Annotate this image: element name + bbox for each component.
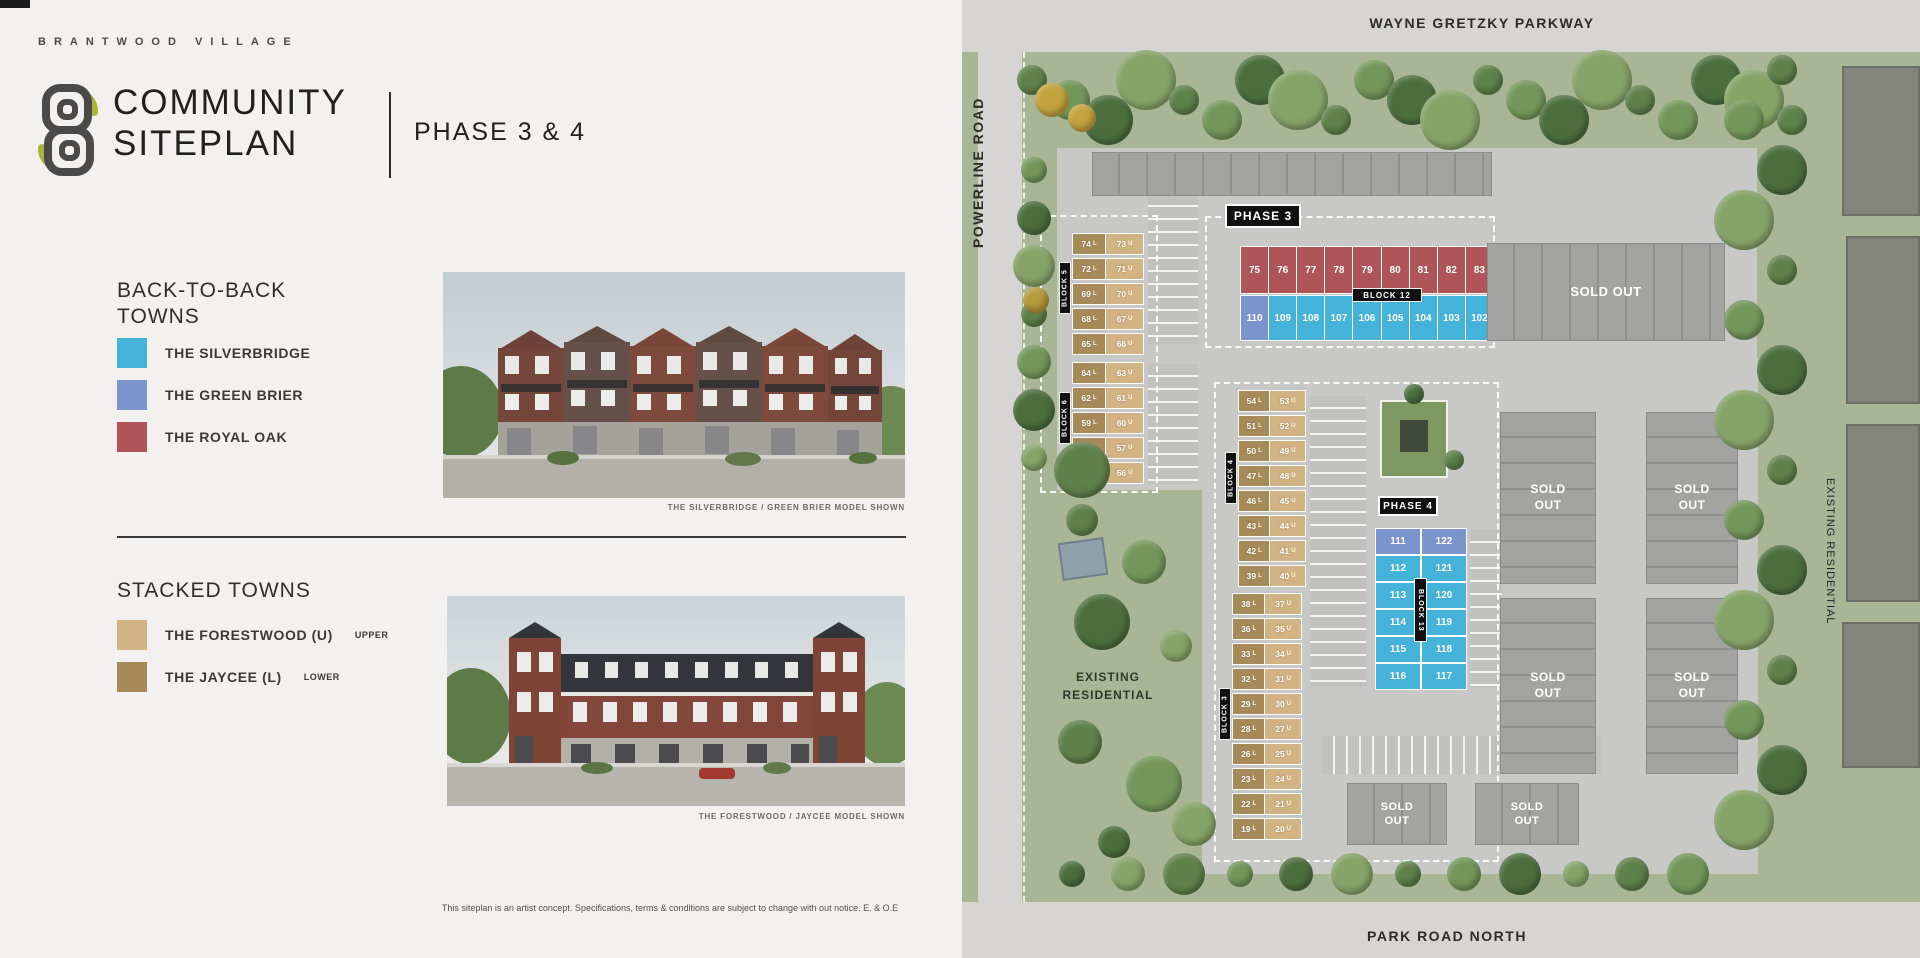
legend-label: THE GREEN BRIER [165, 387, 303, 403]
legend-label: THE FORESTWOOD (U) [165, 627, 333, 643]
park-road-north-label: PARK ROAD NORTH [1332, 928, 1562, 944]
unit-suffix: U [1287, 801, 1291, 807]
legend-item: THE FORESTWOOD (U)UPPER [117, 620, 388, 650]
phase3-tag: PHASE 3 [1225, 204, 1301, 228]
unit-cell: 25U [1265, 744, 1301, 764]
unit-number: 31 [1275, 674, 1284, 684]
unit-cell: 119 [1422, 610, 1466, 635]
unit-cell: 42L [1239, 541, 1269, 561]
tree-icon [1058, 720, 1102, 764]
unit-cell: 66U [1106, 334, 1143, 354]
stacked-model-photo [447, 596, 905, 806]
tree-icon [1163, 853, 1205, 895]
unit-number: 60 [1117, 418, 1126, 428]
existing-house [1058, 537, 1109, 581]
unit-cell: 111 [1376, 529, 1420, 554]
unit-suffix: U [1291, 423, 1295, 429]
tree-icon [1724, 70, 1784, 130]
unit-number: 50 [1247, 446, 1256, 456]
unit-number: 24 [1275, 774, 1284, 784]
block4: 54L53U51L52U50L49U47L48U46L45U43L44U42L4… [1238, 390, 1306, 590]
unit-cell: 105 [1382, 296, 1409, 340]
legend-label: THE JAYCEE (L) [165, 669, 282, 685]
unit-suffix: L [1093, 316, 1097, 322]
block5: 74L73U72L71U69L70U68L67U65L66U [1072, 233, 1144, 358]
unit-suffix: L [1258, 423, 1262, 429]
unit-cell: 44U [1270, 516, 1305, 536]
unit-number: 57 [1117, 443, 1126, 453]
tree-icon [1777, 105, 1807, 135]
photo1-caption: THE SILVERBRIDGE / GREEN BRIER MODEL SHO… [443, 503, 905, 512]
unit-cell: 54L [1239, 391, 1269, 411]
unit-cell: 81 [1410, 247, 1437, 293]
back-to-back-heading: BACK-TO-BACK TOWNS [117, 278, 286, 331]
unit-suffix: U [1128, 370, 1132, 376]
tree-icon [1268, 70, 1328, 130]
tree-icon [1767, 55, 1797, 85]
title-divider [389, 92, 391, 178]
unit-suffix: U [1128, 445, 1132, 451]
unit-suffix: U [1128, 291, 1132, 297]
stacked-towns-heading: STACKED TOWNS [117, 578, 311, 604]
unit-number: 64 [1082, 368, 1091, 378]
tree-icon [1767, 455, 1797, 485]
tree-icon [1059, 861, 1085, 887]
unit-cell: 28L [1233, 719, 1264, 739]
unit-suffix: U [1287, 601, 1291, 607]
existing-building [1842, 66, 1920, 216]
unit-number: 35 [1275, 624, 1284, 634]
unit-cell: 27U [1265, 719, 1301, 739]
stacked-unit-row: 36L35U [1232, 618, 1302, 640]
unit-number: 73 [1117, 239, 1126, 249]
unit-number: 74 [1082, 239, 1091, 249]
unit-cell: 122 [1422, 529, 1466, 554]
unit-number: 34 [1275, 649, 1284, 659]
block5-tag: BLOCK 5 [1059, 262, 1071, 314]
unit-suffix: L [1093, 420, 1097, 426]
tree-icon [1354, 60, 1394, 100]
block12-tag: BLOCK 12 [1352, 288, 1422, 302]
sold-out-label: SOLD OUT [1570, 284, 1641, 301]
section-divider [117, 536, 906, 538]
sold-out-label: SOLD OUT [1525, 670, 1571, 701]
unit-suffix: U [1291, 523, 1295, 529]
unit-cell: 36L [1233, 619, 1264, 639]
unit-number: 28 [1241, 724, 1250, 734]
unit-cell: 110 [1241, 296, 1268, 340]
unit-cell: 35U [1265, 619, 1301, 639]
tree-icon [1473, 65, 1503, 95]
unit-suffix: L [1093, 341, 1097, 347]
stacked-unit-row: 58L57U [1072, 437, 1144, 459]
siteplan-page: BRANTWOOD VILLAGE COMMUNITY SITEPLAN PHA… [0, 0, 1920, 958]
unit-suffix: L [1093, 470, 1097, 476]
title-line1: COMMUNITY [113, 82, 347, 123]
unit-suffix: L [1253, 776, 1257, 782]
unit-cell: 43L [1239, 516, 1269, 536]
unit-cell: 37U [1265, 594, 1301, 614]
unit-cell: 106 [1353, 296, 1380, 340]
legend-suffix: UPPER [355, 630, 389, 640]
tree-icon [1691, 55, 1741, 105]
unit-cell: 72L [1073, 259, 1105, 279]
unit-number: 44 [1280, 521, 1289, 531]
tree-icon [1116, 50, 1176, 110]
unit-number: 52 [1280, 421, 1289, 431]
unit-cell: 71U [1106, 259, 1143, 279]
legend-item: THE JAYCEE (L)LOWER [117, 662, 388, 692]
legend-item: THE ROYAL OAK [117, 422, 310, 452]
unit-suffix: L [1258, 573, 1262, 579]
unit-suffix: L [1253, 676, 1257, 682]
rear-building-strip [1092, 152, 1492, 196]
page-title: COMMUNITY SITEPLAN [113, 82, 347, 165]
tree-icon [1160, 630, 1192, 662]
stacked-unit-row: 28L27U [1232, 718, 1302, 740]
unit-number: 55 [1082, 468, 1091, 478]
unit-suffix: L [1253, 701, 1257, 707]
unit-cell: 108 [1297, 296, 1324, 340]
unit-cell: 32L [1233, 669, 1264, 689]
tree-icon [1111, 857, 1145, 891]
courtyard [1382, 402, 1446, 476]
unit-cell: 20U [1265, 819, 1301, 839]
unit-cell: 103 [1438, 296, 1465, 340]
block6-tag: BLOCK 6 [1059, 392, 1071, 444]
block13-tag: BLOCK 13 [1414, 578, 1427, 642]
legend-label: THE SILVERBRIDGE [165, 345, 310, 361]
unit-cell: 121 [1422, 556, 1466, 581]
sold-out-building: SOLD OUT [1646, 598, 1738, 774]
unit-suffix: L [1253, 726, 1257, 732]
unit-cell: 116 [1376, 664, 1420, 689]
existing-building [1846, 236, 1920, 404]
sold-out-building: SOLD OUT [1500, 412, 1596, 584]
btb-heading-line1: BACK-TO-BACK [117, 278, 286, 304]
unit-suffix: U [1128, 470, 1132, 476]
block12-royal-oak-row: 757677787980818283 [1240, 246, 1494, 294]
stacked-unit-row: 64L63U [1072, 362, 1144, 384]
stacked-unit-row: 42L41U [1238, 540, 1306, 562]
unit-cell: 38L [1233, 594, 1264, 614]
unit-number: 33 [1241, 649, 1250, 659]
tree-icon [1757, 545, 1807, 595]
unit-number: 22 [1241, 799, 1250, 809]
unit-number: 58 [1082, 443, 1091, 453]
unit-cell: 65L [1073, 334, 1105, 354]
unit-cell: 39L [1239, 566, 1269, 586]
unit-number: 20 [1275, 824, 1284, 834]
unit-number: 40 [1280, 571, 1289, 581]
unit-suffix: L [1253, 826, 1257, 832]
siteplan-map: PHASE 3 PHASE 4 757677787980818283 11010… [962, 0, 1920, 958]
unit-number: 29 [1241, 699, 1250, 709]
unit-number: 48 [1280, 471, 1289, 481]
legend-swatch [117, 662, 147, 692]
unit-number: 54 [1247, 396, 1256, 406]
unit-suffix: L [1258, 473, 1262, 479]
unit-cell: 29L [1233, 694, 1264, 714]
stacked-unit-row: 50L49U [1238, 440, 1306, 462]
unit-cell: 117 [1422, 664, 1466, 689]
tree-icon [1724, 100, 1764, 140]
unit-cell: 31U [1265, 669, 1301, 689]
stacked-unit-row: 29L30U [1232, 693, 1302, 715]
unit-number: 66 [1117, 339, 1126, 349]
exist-left-line1: EXISTING [1044, 668, 1172, 686]
unit-cell: 48U [1270, 466, 1305, 486]
unit-number: 30 [1275, 699, 1284, 709]
unit-cell: 50L [1239, 441, 1269, 461]
unit-number: 70 [1117, 289, 1126, 299]
exist-left-line2: RESIDENTIAL [1044, 686, 1172, 704]
unit-number: 41 [1280, 546, 1289, 556]
tree-icon [1098, 826, 1130, 858]
unit-number: 56 [1117, 468, 1126, 478]
unit-suffix: L [1093, 291, 1097, 297]
unit-suffix: U [1291, 448, 1295, 454]
unit-suffix: L [1093, 241, 1097, 247]
unit-number: 23 [1241, 774, 1250, 784]
unit-cell: 52U [1270, 416, 1305, 436]
unit-number: 26 [1241, 749, 1250, 759]
unit-number: 47 [1247, 471, 1256, 481]
tree-icon [1420, 90, 1480, 150]
existing-residential-right-label: EXISTING RESIDENTIAL [1824, 478, 1835, 628]
unit-number: 49 [1280, 446, 1289, 456]
stacked-unit-row: 22L21U [1232, 793, 1302, 815]
unit-cell: 49U [1270, 441, 1305, 461]
unit-suffix: L [1258, 498, 1262, 504]
stacked-unit-row: 46L45U [1238, 490, 1306, 512]
tree-icon [1767, 655, 1797, 685]
stacked-unit-row: 55L56U [1072, 462, 1144, 484]
btb-heading-line2: TOWNS [117, 304, 286, 330]
unit-suffix: U [1287, 701, 1291, 707]
tree-icon [1126, 756, 1182, 812]
unit-number: 32 [1241, 674, 1250, 684]
legend-item: THE GREEN BRIER [117, 380, 310, 410]
unit-cell: 41U [1270, 541, 1305, 561]
unit-suffix: U [1128, 341, 1132, 347]
sold-out-label: SOLD OUT [1669, 670, 1715, 701]
unit-number: 42 [1247, 546, 1256, 556]
unit-suffix: U [1291, 398, 1295, 404]
unit-cell: 26L [1233, 744, 1264, 764]
back-to-back-legend: THE SILVERBRIDGETHE GREEN BRIERTHE ROYAL… [117, 338, 310, 452]
tree-icon [1202, 100, 1242, 140]
unit-suffix: L [1258, 523, 1262, 529]
legend-swatch [117, 620, 147, 650]
sold-out-building: SOLD OUT [1500, 598, 1596, 774]
tree-icon [1767, 255, 1797, 285]
sold-out-building: SOLD OUT [1646, 412, 1738, 584]
info-panel: BRANTWOOD VILLAGE COMMUNITY SITEPLAN PHA… [0, 0, 962, 958]
tree-icon [1572, 50, 1632, 110]
unit-cell: 118 [1422, 637, 1466, 662]
sold-out-label: SOLD OUT [1525, 482, 1571, 513]
unit-cell: 78 [1325, 247, 1352, 293]
unit-cell: 120 [1422, 583, 1466, 608]
unit-suffix: L [1253, 651, 1257, 657]
legend-suffix: LOWER [304, 672, 340, 682]
tree-icon [1658, 100, 1698, 140]
unit-number: 45 [1280, 496, 1289, 506]
block4-tag: BLOCK 4 [1225, 452, 1237, 504]
unit-cell: 53U [1270, 391, 1305, 411]
unit-cell: 23L [1233, 769, 1264, 789]
unit-suffix: L [1093, 266, 1097, 272]
unit-cell: 47L [1239, 466, 1269, 486]
tree-icon [1235, 55, 1285, 105]
unit-suffix: U [1287, 626, 1291, 632]
sold-out-building: SOLD OUT [1347, 783, 1447, 845]
tree-icon [1169, 85, 1199, 115]
unit-cell: 67U [1106, 309, 1143, 329]
sold-out-label: SOLD OUT [1374, 800, 1420, 829]
unit-number: 53 [1280, 396, 1289, 406]
stacked-unit-row: 39L40U [1238, 565, 1306, 587]
tree-icon [1625, 85, 1655, 115]
unit-cell: 24U [1265, 769, 1301, 789]
sold-out-building: SOLD OUT [1475, 783, 1579, 845]
photo2-caption: THE FORESTWOOD / JAYCEE MODEL SHOWN [447, 812, 905, 821]
tree-icon [1074, 594, 1130, 650]
courtyard-amenity [1400, 420, 1428, 452]
stacked-unit-row: 65L66U [1072, 333, 1144, 355]
phase-subtitle: PHASE 3 & 4 [414, 118, 586, 147]
back-to-back-model-photo [443, 272, 905, 498]
unit-cell: 51L [1239, 416, 1269, 436]
unit-number: 19 [1241, 824, 1250, 834]
tree-icon [1387, 75, 1437, 125]
stacked-unit-row: 19L20U [1232, 818, 1302, 840]
unit-suffix: U [1291, 498, 1295, 504]
unit-suffix: U [1287, 826, 1291, 832]
unit-cell: 80 [1382, 247, 1409, 293]
unit-cell: 104 [1410, 296, 1437, 340]
block3: 38L37U36L35U33L34U32L31U29L30U28L27U26L2… [1232, 593, 1302, 843]
unit-suffix: U [1128, 266, 1132, 272]
existing-building [1842, 622, 1920, 768]
existing-residential-left-label: EXISTING RESIDENTIAL [1044, 668, 1172, 704]
unit-suffix: L [1253, 601, 1257, 607]
stacked-unit-row: 69L70U [1072, 283, 1144, 305]
legend-swatch [117, 380, 147, 410]
unit-number: 62 [1082, 393, 1091, 403]
brantwood-logo-icon [36, 80, 100, 180]
unit-cell: 82 [1438, 247, 1465, 293]
unit-number: 36 [1241, 624, 1250, 634]
stacked-unit-row: 38L37U [1232, 593, 1302, 615]
unit-cell: 58L [1073, 438, 1105, 458]
unit-suffix: U [1291, 473, 1295, 479]
unit-cell: 63U [1106, 363, 1143, 383]
stacked-unit-row: 32L31U [1232, 668, 1302, 690]
tree-icon [1122, 540, 1166, 584]
legend-label: THE ROYAL OAK [165, 429, 287, 445]
unit-cell: 74L [1073, 234, 1105, 254]
unit-cell: 30U [1265, 694, 1301, 714]
unit-cell: 46L [1239, 491, 1269, 511]
sold-out-label: SOLD OUT [1669, 482, 1715, 513]
title-line2: SITEPLAN [113, 123, 347, 164]
unit-cell: 22L [1233, 794, 1264, 814]
unit-suffix: U [1291, 573, 1295, 579]
unit-suffix: U [1287, 676, 1291, 682]
unit-suffix: U [1287, 726, 1291, 732]
tree-icon [1035, 83, 1069, 117]
unit-cell: 45U [1270, 491, 1305, 511]
disclaimer-text: This siteplan is an artist concept. Spec… [400, 903, 940, 913]
legend-item: THE SILVERBRIDGE [117, 338, 310, 368]
unit-suffix: L [1093, 395, 1097, 401]
unit-number: 27 [1275, 724, 1284, 734]
unit-suffix: L [1253, 801, 1257, 807]
unit-suffix: L [1253, 626, 1257, 632]
unit-cell: 79 [1353, 247, 1380, 293]
tree-icon [1050, 80, 1090, 120]
unit-number: 63 [1117, 368, 1126, 378]
unit-suffix: L [1258, 398, 1262, 404]
unit-suffix: L [1258, 548, 1262, 554]
unit-number: 67 [1117, 314, 1126, 324]
road-edge-dashes [1023, 52, 1025, 902]
tree-icon [1068, 104, 1096, 132]
wayne-gretzky-parkway-label: WAYNE GRETZKY PARKWAY [1322, 15, 1642, 31]
unit-cell: 21U [1265, 794, 1301, 814]
unit-cell: 69L [1073, 284, 1105, 304]
block13-row: 111122 [1376, 529, 1466, 554]
unit-cell: 70U [1106, 284, 1143, 304]
unit-number: 43 [1247, 521, 1256, 531]
tree-icon [1539, 95, 1589, 145]
unit-cell: 33L [1233, 644, 1264, 664]
unit-number: 59 [1082, 418, 1091, 428]
unit-number: 69 [1082, 289, 1091, 299]
unit-cell: 61U [1106, 388, 1143, 408]
existing-building [1846, 424, 1920, 602]
stacked-unit-row: 43L44U [1238, 515, 1306, 537]
stacked-unit-row: 26L25U [1232, 743, 1302, 765]
powerline-road-label: POWERLINE ROAD [970, 78, 986, 248]
unit-cell: 56U [1106, 463, 1143, 483]
unit-number: 46 [1247, 496, 1256, 506]
unit-cell: 55L [1073, 463, 1105, 483]
unit-suffix: U [1128, 420, 1132, 426]
legend-swatch [117, 422, 147, 452]
unit-number: 72 [1082, 264, 1091, 274]
block6: 64L63U62L61U59L60U58L57U55L56U [1072, 362, 1144, 487]
unit-cell: 62L [1073, 388, 1105, 408]
stacked-unit-row: 51L52U [1238, 415, 1306, 437]
stacked-unit-row: 47L48U [1238, 465, 1306, 487]
tree-icon [1757, 145, 1807, 195]
stacked-unit-row: 74L73U [1072, 233, 1144, 255]
unit-suffix: L [1093, 370, 1097, 376]
unit-number: 65 [1082, 339, 1091, 349]
legend-swatch [117, 338, 147, 368]
tree-icon [1321, 105, 1351, 135]
unit-number: 68 [1082, 314, 1091, 324]
unit-suffix: L [1253, 751, 1257, 757]
unit-suffix: L [1093, 445, 1097, 451]
unit-cell: 40U [1270, 566, 1305, 586]
unit-cell: 73U [1106, 234, 1143, 254]
stacked-unit-row: 62L61U [1072, 387, 1144, 409]
unit-cell: 68L [1073, 309, 1105, 329]
